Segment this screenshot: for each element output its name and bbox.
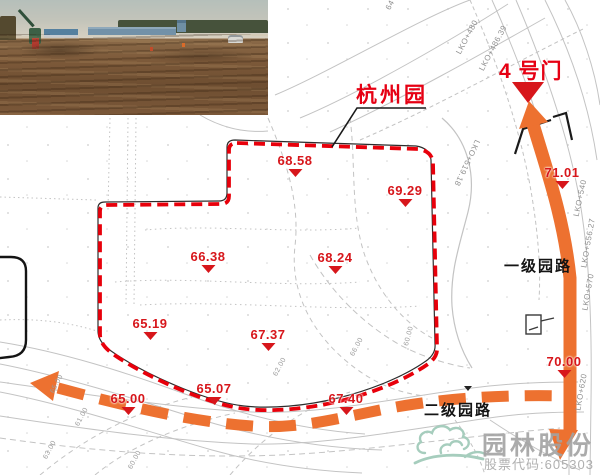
watermark-stock-code: 股票代码:605303 [484, 454, 594, 473]
elevation-value: 70.00 [546, 355, 581, 368]
site-photo [0, 0, 268, 115]
photo-flag [150, 47, 153, 51]
elevation-triangle-icon [557, 370, 571, 378]
photo-tower [177, 20, 186, 32]
elevation-triangle-icon [121, 407, 135, 415]
elevation-value: 68.24 [317, 251, 352, 264]
gate-label: 4 号门 [499, 61, 563, 82]
elevation-triangle-icon [328, 266, 342, 274]
elevation-triangle-icon [555, 181, 569, 189]
elevation-value: 66.38 [190, 250, 225, 263]
elevation-marker: 66.38 [190, 250, 225, 273]
elevation-value: 71.01 [544, 166, 579, 179]
elevation-marker: 67.37 [250, 328, 285, 351]
photo-dirt-patches [0, 36, 268, 66]
secondary-road-label: 二级园路 [424, 403, 492, 418]
elevation-triangle-icon [261, 343, 275, 351]
elevation-value: 67.40 [328, 392, 363, 405]
elevation-triangle-icon [339, 407, 353, 415]
garden-name-label: 杭州园 [356, 85, 428, 106]
photo-crane-boom [18, 9, 35, 27]
elevation-marker: 68.58 [277, 154, 312, 177]
elevation-triangle-icon [288, 169, 302, 177]
elevation-value: 67.37 [250, 328, 285, 341]
elevation-triangle-icon [207, 397, 221, 405]
primary-road-label: 一级园路 [504, 259, 572, 274]
photo-flag [182, 43, 185, 47]
site-plan-page: 杭州园 4 号门 一级园路 二级园路 68.5869.2966.3868.246… [0, 0, 600, 475]
elevation-marker: 70.00 [546, 355, 581, 378]
elevation-value: 69.29 [387, 184, 422, 197]
elevation-marker: 65.19 [132, 317, 167, 340]
elevation-triangle-icon [201, 265, 215, 273]
company-logo-cloud-icon [413, 423, 487, 473]
elevation-value: 65.19 [132, 317, 167, 330]
elevation-triangle-icon [398, 199, 412, 207]
elevation-marker: 69.29 [387, 184, 422, 207]
elevation-marker: 65.00 [110, 392, 145, 415]
elevation-value: 65.00 [110, 392, 145, 405]
elevation-value: 65.07 [196, 382, 231, 395]
elevation-value: 68.58 [277, 154, 312, 167]
elevation-marker: 71.01 [544, 166, 579, 189]
elevation-marker: 65.07 [196, 382, 231, 405]
elevation-marker: 67.40 [328, 392, 363, 415]
elevation-triangle-icon [143, 332, 157, 340]
elevation-marker: 68.24 [317, 251, 352, 274]
